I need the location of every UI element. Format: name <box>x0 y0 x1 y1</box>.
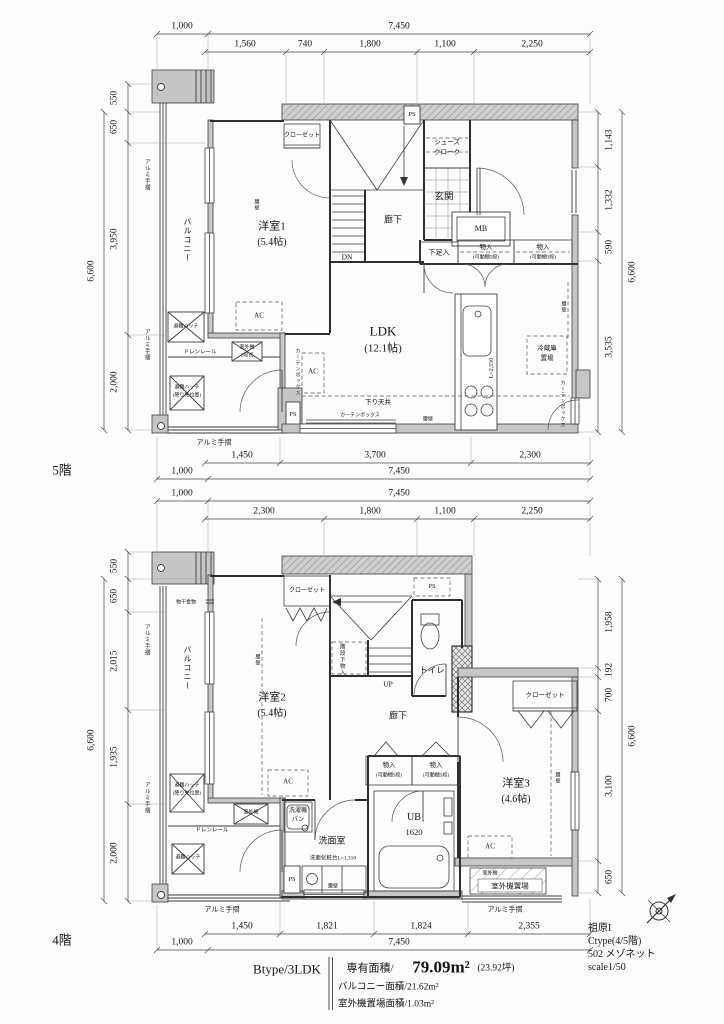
f5-outdoor-unit-label: 室外機 <box>239 346 254 351</box>
f4-dim: 7,450 <box>388 489 409 499</box>
f4-storage-shelf5: (可動棚5段) <box>423 774 449 779</box>
f5-hatch-landing-label: (降り先位置) <box>173 394 201 399</box>
f4-closet-label: クローゼット <box>289 588 325 594</box>
f5-dim: 740 <box>298 40 312 50</box>
f4-ac-label: AC <box>283 779 293 786</box>
f4-outdoor-unit-label: 室外機 <box>482 872 497 877</box>
f5-dim: 2,250 <box>521 40 542 50</box>
f5-dim: 1,450 <box>231 451 252 461</box>
f4-dim: 3,100 <box>605 775 615 796</box>
f5-outdoor-tier-label: 2段式 <box>241 354 254 359</box>
f5-rail-label: アルミ手摺 <box>143 329 149 362</box>
floor4-title: 4階 <box>52 934 72 947</box>
f4-washer-label: パン <box>292 817 304 823</box>
f4-rail-label: アルミ手摺 <box>143 624 149 657</box>
project-unit: 502 メゾネット <box>588 950 656 960</box>
f5-dim: 2,000 <box>110 371 120 392</box>
f4-closet-label: クローゼット <box>526 693 565 700</box>
f4-hall-label: 廊下 <box>389 712 407 721</box>
f4-storage-label: 物入 <box>430 763 443 770</box>
f5-fridge-label: 置場 <box>541 356 554 363</box>
f5-dim: 2,300 <box>519 451 540 461</box>
f4-dim: 650 <box>110 589 120 603</box>
f5-storage-label: 物入 <box>480 245 493 252</box>
f4-washroom-label: 洗面室 <box>318 837 345 846</box>
f4-outdoor-place-label: 室外機置場 <box>491 882 529 890</box>
f4-dim: 192 <box>605 663 615 677</box>
f5-kitchen-length: L=2,550 <box>489 358 495 379</box>
f4-up-label: UP <box>383 680 393 688</box>
compass-icon <box>647 894 676 923</box>
f5-ps-label: PS <box>408 112 415 119</box>
f4-dim: 2,355 <box>518 922 539 932</box>
f4-dim: 1,450 <box>231 922 252 932</box>
project-name: 祖原I <box>588 924 611 934</box>
f5-storage-shelf3: (可動棚3段) <box>530 256 556 261</box>
f5-drain-label: ドレンレール <box>183 350 216 356</box>
f4-vanity-label: 洗面化粧台L=1,310 <box>310 856 356 862</box>
f5-shoescloak-label: クローク <box>434 150 460 157</box>
f4-hatch-landing-label: (降り先位置) <box>173 792 201 797</box>
floor4-plan <box>101 498 625 953</box>
f5-koshikabe-label: 腰壁 <box>254 199 259 211</box>
area-tsubo: (23.92坪) <box>477 964 514 974</box>
f4-dim: 700 <box>605 688 615 702</box>
f4-koshikabe-label: 腰壁 <box>555 772 560 784</box>
f5-dim: 1,143 <box>605 129 615 150</box>
f5-dim: 7,450 <box>388 22 409 32</box>
f5-koshikabe-label: 腰壁 <box>561 301 566 313</box>
f4-dim: 1,100 <box>434 507 455 517</box>
f4-dim: 2,015 <box>110 650 120 671</box>
f5-dim: 1,000 <box>171 467 192 477</box>
f4-ub-size: 1620 <box>406 828 423 837</box>
f4-dim: 1,958 <box>605 611 615 632</box>
f5-mb-label: MB <box>475 225 487 233</box>
f5-storage-label: 物入 <box>537 245 550 252</box>
f4-storage-label: 物入 <box>383 763 396 770</box>
f4-washer-label: 洗濯機 <box>289 808 307 814</box>
f4-room3-label: 洋室3 <box>502 779 530 790</box>
f4-toilet-label: トイレ <box>419 666 445 675</box>
f5-dim: 1,560 <box>234 40 255 50</box>
f4-dim: 1,935 <box>110 746 120 767</box>
f4-room2-label: 洋室2 <box>258 693 286 704</box>
f4-dim: 1,800 <box>359 507 380 517</box>
f4-dim: 6,600 <box>87 729 97 750</box>
f5-curtainbox-label: カーテンボックス <box>560 380 565 428</box>
area-label: 専有面積/ <box>346 964 393 975</box>
f4-dim: 6,600 <box>628 725 638 746</box>
f4-dim: 1,000 <box>171 938 192 948</box>
f4-dim: 1,821 <box>316 922 337 932</box>
f5-dim: 1,000 <box>171 22 192 32</box>
f4-ps-label: PS <box>428 584 435 591</box>
f5-ac-label: AC <box>308 369 318 376</box>
f4-dim: 1,000 <box>171 489 192 499</box>
f5-room1-label: 洋室1 <box>258 222 286 233</box>
f4-ps-label: PS <box>288 877 295 884</box>
f5-storage-shelf5: (可動棚5段) <box>473 256 499 261</box>
f5-hatch-label: 避難ハッチ <box>173 325 198 330</box>
f4-room3-size: (4.6帖) <box>501 795 530 805</box>
f5-shoebox-label: 下足入 <box>429 250 450 257</box>
f4-ub-label: UB <box>407 813 421 823</box>
area-value: 79.09m² <box>412 959 470 976</box>
f5-dim: 1,100 <box>434 40 455 50</box>
f4-koshikabe-label: 腰壁 <box>255 654 260 666</box>
balcony-area-label: バルコニー面積/21.62m² <box>338 983 439 993</box>
f4-ac-label: AC <box>485 844 495 851</box>
f5-ac-label: AC <box>254 313 264 320</box>
f4-storage-shelf5: (可動棚5段) <box>376 774 402 779</box>
f4-dim: 2,000 <box>110 842 120 863</box>
f4-dim: 2,300 <box>253 507 274 517</box>
f5-hall-label: 廊下 <box>384 216 402 225</box>
f5-curtainbox-label: カーテンボックス <box>295 348 300 396</box>
f5-dim: 650 <box>110 120 120 134</box>
f4-dim: 650 <box>605 870 615 884</box>
project-scale: scale1/50 <box>588 963 626 973</box>
f5-dim: 6,600 <box>628 261 638 282</box>
f5-dim: 3,535 <box>605 336 615 357</box>
f5-curtainbox-label: カーテンボックス <box>340 414 380 419</box>
f4-hatch-label: 避難ハッチ <box>175 856 200 861</box>
f4-balcony-label: バルコニー <box>183 646 191 691</box>
f5-koshikabe-label: 腰壁 <box>423 418 433 423</box>
f5-closet-label: クローゼット <box>284 133 320 139</box>
f5-lowered-ceiling-label: 下り天井 <box>365 400 391 407</box>
f5-rail-label: アルミ手摺 <box>197 440 232 447</box>
f5-ldk-label: LDK <box>370 325 397 338</box>
f5-dn-label: DN <box>342 253 353 261</box>
f5-dim: 590 <box>605 240 615 254</box>
f5-shoescloak-label: シューズ <box>434 140 460 147</box>
f5-fridge-label: 冷蔵庫 <box>537 346 557 353</box>
unit-type-label: Btype/3LDK <box>253 963 321 976</box>
floor5-title: 5階 <box>52 464 72 477</box>
outdoor-area-label: 室外機置場面積/1.03m² <box>338 1000 434 1010</box>
f4-room2-size: (5.4帖) <box>257 709 286 719</box>
project-type: Ctype(4/5階) <box>588 937 641 947</box>
f4-drain-label: ドレンレール <box>195 828 228 834</box>
f5-rail-label: アルミ手摺 <box>143 159 149 192</box>
f4-outdoor-unit-label: 室外機 <box>243 811 258 816</box>
f5-hatch-label: 避難ハッチ <box>174 386 199 391</box>
f5-dim: 3,950 <box>110 228 120 249</box>
title-block-rule <box>329 957 333 1010</box>
f4-dim: 1,824 <box>410 922 431 932</box>
f5-balcony-label: バルコニー <box>183 218 191 263</box>
f5-genkan-label: 玄関 <box>434 193 453 203</box>
f5-room1-size: (5.4帖) <box>257 238 286 248</box>
f4-dim: 550 <box>110 559 120 573</box>
f4-dim: 2,250 <box>521 507 542 517</box>
f5-ldk-size: (12.1帖) <box>364 344 402 355</box>
f5-dim: 3,700 <box>364 451 385 461</box>
f4-hatch-label: 避難ハッチ <box>174 784 199 789</box>
f4-rail-label: アルミ手摺 <box>488 907 523 914</box>
f4-koshikabe-label: 腰壁 <box>328 885 338 890</box>
f5-dim: 1,800 <box>359 40 380 50</box>
floorplan-page: { "page": {"floor5": "5階", "floor4": "4階… <box>0 0 724 1024</box>
f5-dim: 1,332 <box>605 189 615 210</box>
f4-monohoshi-label: 物干金物 <box>176 601 196 606</box>
f5-dim: 550 <box>110 91 120 105</box>
f5-ps-label: PS <box>289 412 296 419</box>
f5-dim: 7,450 <box>388 467 409 477</box>
f4-stair-storage-label: 階段下物入 <box>338 644 344 677</box>
f4-dim: 7,450 <box>388 938 409 948</box>
f4-rail-label: アルミ手摺 <box>205 907 240 914</box>
f4-rail-label: アルミ手摺 <box>143 782 149 815</box>
f5-dim: 6,600 <box>87 260 97 281</box>
